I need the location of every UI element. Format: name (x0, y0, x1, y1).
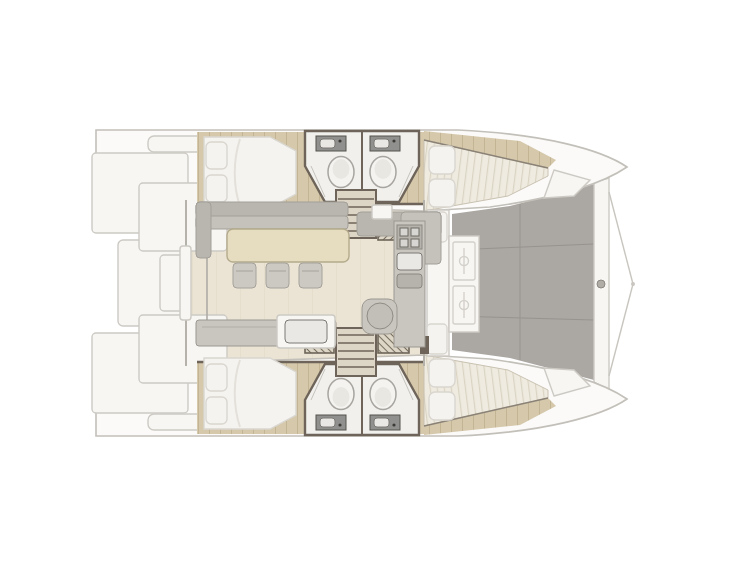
dining-table (227, 229, 349, 262)
floor-plan-canvas (0, 0, 751, 563)
bow-bridle-lines (609, 192, 635, 376)
sink-icon (316, 136, 346, 151)
toilet-icon (370, 157, 396, 188)
galley-aft (196, 315, 336, 348)
galley-sink-icon (285, 320, 327, 343)
pillow (206, 142, 227, 169)
pillow (206, 175, 227, 202)
sink-icon (370, 136, 400, 151)
side-unit (372, 205, 392, 219)
aft-sliding-door (180, 246, 191, 320)
pillow (429, 146, 455, 174)
bow-fitting-icon (597, 280, 605, 288)
round-pod (362, 299, 397, 334)
stools (233, 263, 322, 288)
toilet-icon (328, 157, 354, 188)
bench-cushion (427, 324, 447, 354)
pillow (429, 179, 455, 207)
galley-sink-icon (397, 253, 422, 270)
catamaran-floor-plan (0, 0, 751, 563)
galley-drawer (397, 274, 422, 288)
stove-icon (397, 225, 422, 249)
